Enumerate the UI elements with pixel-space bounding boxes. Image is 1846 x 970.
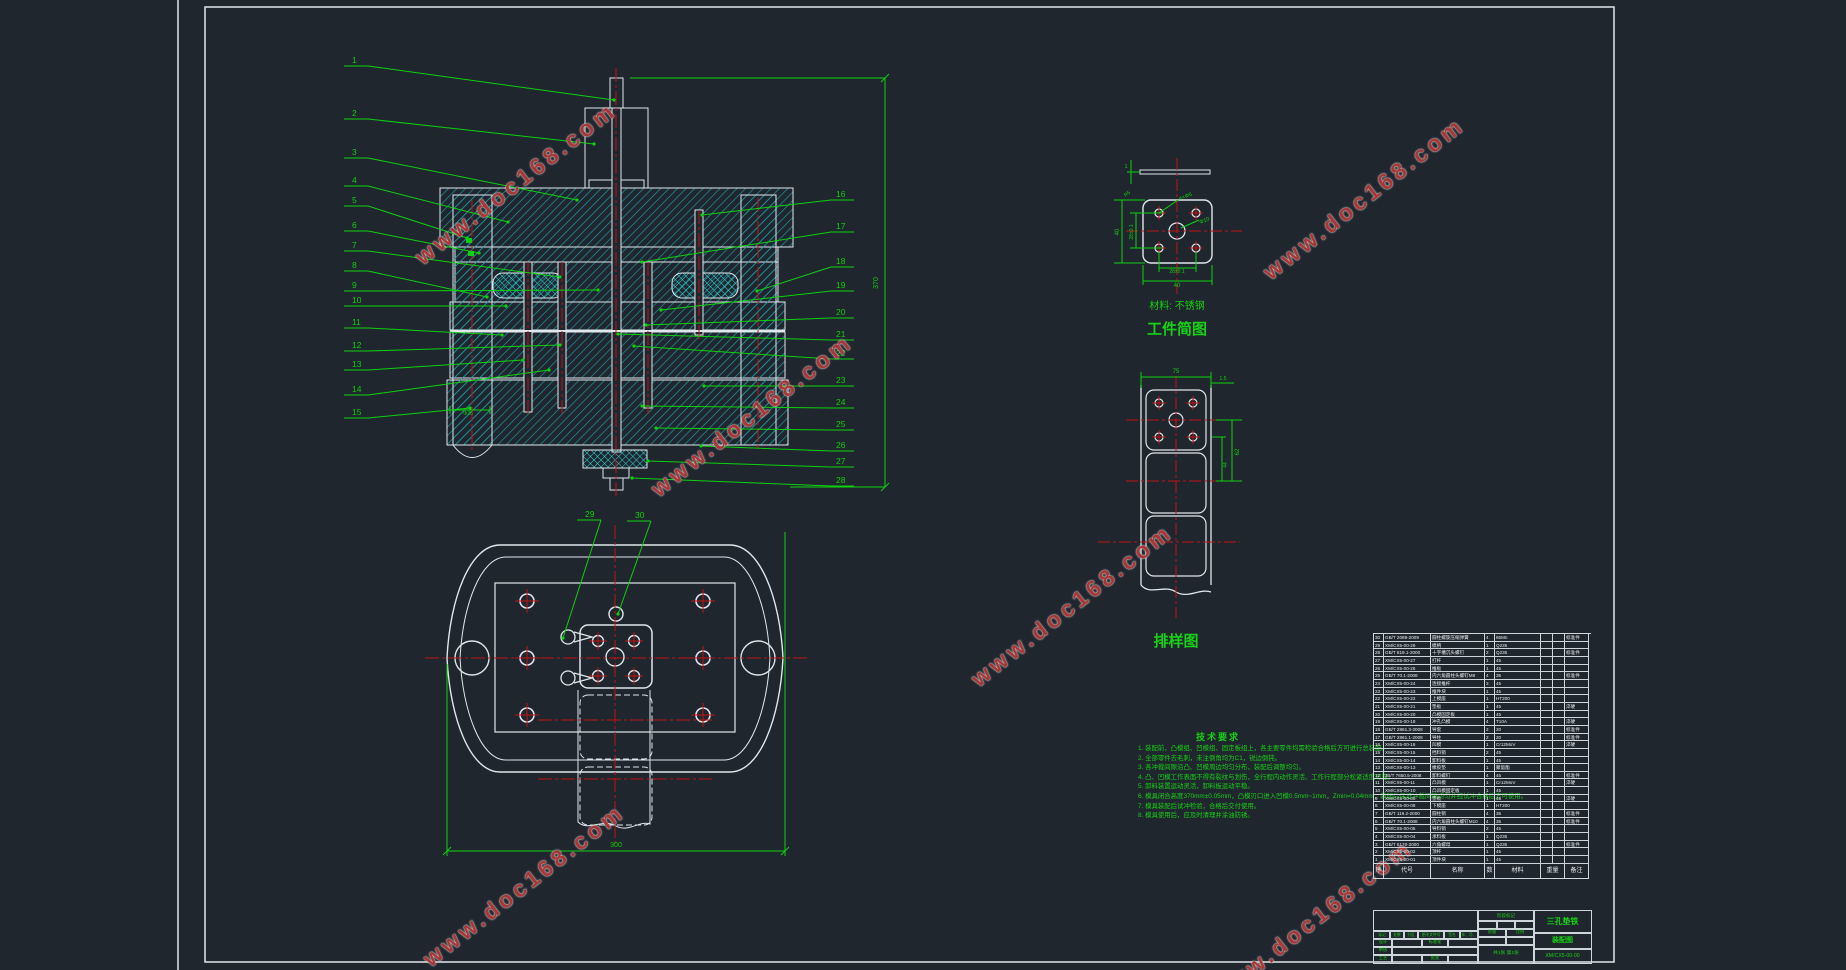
bom-cell: XM/CX5-00-02 [1384,848,1431,856]
bom-cell [1541,649,1553,657]
bom-cell: 14 [1374,757,1384,765]
bom-cell: 1 [1485,779,1495,787]
approve-sign-cell [1447,954,1479,964]
bom-cell: 导料销 [1431,825,1485,833]
bom-cell [1565,856,1589,864]
bom-row: 26XM/CX5-00-26推板145 [1374,665,1591,673]
bom-cell: 45 [1495,772,1541,780]
bom-cell: 35 [1495,810,1541,818]
leader-number: 17 [836,221,846,231]
bom-cell [1565,695,1589,703]
workpiece-view-title: 工件简图 [1147,320,1207,338]
bom-cell: 4 [1485,672,1495,680]
bom-header-weight: 重量 [1541,864,1565,879]
leader-number: 4 [352,175,357,185]
bom-cell [1553,825,1565,833]
bom-cell [1553,848,1565,856]
leader-line [701,446,831,451]
bom-cell: 2 [1485,726,1495,734]
bom-cell: 45 [1495,757,1541,765]
layout-view-title: 排样图 [1153,632,1198,650]
bom-cell [1553,688,1565,696]
bom-row: 13XM/CX5-00-13橡胶垫1聚氨酯 [1374,764,1591,772]
bom-cell: 3 [1485,680,1495,688]
bom-cell: GB/T 819.1-2000 [1384,649,1431,657]
bom-cell: 1 [1485,703,1495,711]
bom-cell: 冲孔凸模 [1431,718,1485,726]
leader-line [368,66,614,100]
bom-row: 16XM/CX5-00-16凹模1Cr12MoV淬硬 [1374,741,1591,749]
bom-cell: Q235 [1495,649,1541,657]
bom-header-code: 代号 [1384,864,1431,879]
leader-number: 6 [352,220,357,230]
bom-cell: 淬硬 [1565,795,1589,803]
bom-cell: 19 [1374,718,1384,726]
bom-cell: GB/T 2089-2009 [1384,634,1431,642]
bom-cell: 1 [1374,856,1384,864]
leader-number: 29 [585,509,595,519]
bom-cell [1565,680,1589,688]
layout-centerlines [1098,376,1240,618]
bom-cell: 26 [1374,665,1384,673]
bom-row: 23XM/CX5-00-23推件块145 [1374,688,1591,696]
leader-dot [632,344,635,347]
bom-cell [1553,734,1565,742]
leader-number: 26 [836,440,846,450]
bom-cell [1553,741,1565,749]
bom-row: 5XM/CX5-00-05导料销245 [1374,825,1591,833]
bom-cell: 橡胶垫 [1431,764,1485,772]
bom-header-no: 序号 [1374,864,1384,879]
workpiece-side-view [1140,170,1210,174]
bom-cell: HT200 [1495,802,1541,810]
bom-cell: 45 [1495,795,1541,803]
bom-cell: XM/CX5-00-14 [1384,757,1431,765]
bom-cell: 1 [1485,787,1495,795]
bom-cell [1541,848,1553,856]
rubber-block-right [672,273,738,298]
leader-dot [644,323,647,326]
bom-row: 4XM/CX5-00-04承料板1Q235 [1374,833,1591,841]
bom-row: 10XM/CX5-00-10凸凹模固定板145 [1374,787,1591,795]
bom-row: 9XM/CX5-00-09垫板145淬硬 [1374,795,1591,803]
bom-cell: 内六角圆柱头螺钉M8 [1431,672,1485,680]
dim-text: 370 [873,277,880,289]
bom-cell: XM/CX5-00-15 [1384,749,1431,757]
bom-cell: 凸模固定板 [1431,711,1485,719]
bom-cell: XM/CX5-00-04 [1384,833,1431,841]
bom-cell: 1 [1485,688,1495,696]
bom-cell: XM/CX5-00-19 [1384,718,1431,726]
dim-text: 300 [610,842,622,849]
bom-cell: JB/T 7650.5-2008 [1384,772,1431,780]
bom-cell: 1 [1485,657,1495,665]
bom-cell: 45 [1495,703,1541,711]
bom-cell: 标准件 [1565,841,1589,849]
bom-cell: XM/CX5-00-20 [1384,711,1431,719]
bom-cell [1541,841,1553,849]
bom-cell: 1 [1485,711,1495,719]
leader-dot [592,142,595,145]
bom-cell: 28 [1374,649,1384,657]
thickness-dim [1127,160,1140,184]
dim-text: Φ10 [1199,216,1211,226]
bom-cell: 7 [1374,810,1384,818]
workpiece-material-note: 材料: 不锈钢 [1149,299,1205,312]
bom-cell [1565,657,1589,665]
leader-dot [616,332,619,335]
bom-cell: Q235 [1495,642,1541,650]
bom-cell [1565,787,1589,795]
bom-cell: XM/CX5-00-24 [1384,680,1431,688]
bom-row: 28GB/T 819.1-2000十字槽沉头螺钉2Q235标准件 [1374,649,1591,657]
leader-dot [485,295,488,298]
bom-cell: 27 [1374,657,1384,665]
bom-cell: 35 [1495,672,1541,680]
leader-dot [699,444,702,447]
leader-dot [575,198,578,201]
bom-cell [1553,649,1565,657]
bom-cell: 20 [1495,726,1541,734]
bom-cell: 65Mn [1495,634,1541,642]
leader-line [632,478,831,486]
bom-cell: XM/CX5-00-01 [1384,856,1431,864]
bom-cell: Q235 [1495,833,1541,841]
bom-cell: 1 [1485,848,1495,856]
bom-cell: 1 [1485,757,1495,765]
bom-cell: 导柱 [1431,734,1485,742]
bom-row: 25GB/T 70.1-2008内六角圆柱头螺钉M8435标准件 [1374,672,1591,680]
bom-row: 8XM/CX5-00-08下模座1HT200 [1374,802,1591,810]
dim-text: 1 [1124,164,1127,170]
bom-row: 27XM/CX5-00-27打杆145 [1374,657,1591,665]
leader-number: 5 [352,195,357,205]
bom-cell: 推件块 [1431,688,1485,696]
leader-dot [630,476,633,479]
bom-cell [1553,749,1565,757]
leader-number: 14 [352,384,362,394]
bom-cell: 1 [1485,833,1495,841]
bom-cell: 1 [1485,841,1495,849]
bom-row: 7GB/T 119.2-2000圆柱销435标准件 [1374,810,1591,818]
bom-cell [1565,688,1589,696]
bom-cell: 4 [1374,833,1384,841]
bom-cell: 45 [1495,657,1541,665]
leader-number: 19 [836,280,846,290]
bom-cell: XM/CX5-00-22 [1384,695,1431,703]
leader-number: 9 [352,280,357,290]
bom-cell [1565,642,1589,650]
bom-cell: 2 [1485,734,1495,742]
bom-cell: 30 [1374,634,1384,642]
plan-view [425,525,808,856]
bom-cell [1565,757,1589,765]
bom-cell [1541,757,1553,765]
bom-cell: 六角螺母 [1431,841,1485,849]
dim-text: R5 [1123,190,1132,199]
product-name: 三孔垫铁 [1533,910,1592,934]
bom-cell: 1 [1485,695,1495,703]
leader-dot [702,384,705,387]
bom-cell [1541,642,1553,650]
bom-cell: 淬硬 [1565,779,1589,787]
bom-cell: 8 [1374,802,1384,810]
leader-dot [558,275,561,278]
section-view [440,68,889,497]
bom-cell: 圆柱螺旋压缩弹簧 [1431,634,1485,642]
bom-cell [1553,634,1565,642]
bom-row: 1XM/CX5-00-01顶件块145 [1374,856,1591,864]
dim-text: 62 [1235,448,1241,455]
leader-number: 2 [352,108,357,118]
leader-dot [659,308,662,311]
leader-number: 23 [836,375,846,385]
bom-cell: 标准件 [1565,734,1589,742]
bom-cell: 标准件 [1565,672,1589,680]
bom-cell: 标准件 [1565,818,1589,826]
bom-cell: 45 [1495,711,1541,719]
bom-cell [1541,695,1553,703]
bom-cell: 标准件 [1565,772,1589,780]
bom-header-remark: 备注 [1565,864,1589,879]
leader-number: 13 [352,359,362,369]
bom-cell: 16 [1374,741,1384,749]
bom-cell: 45 [1495,787,1541,795]
bom-cell [1553,665,1565,673]
leader-dot [654,426,657,429]
bom-cell: 12 [1374,772,1384,780]
leader-dot [506,220,509,223]
bom-cell: GB/T 70.1-2008 [1384,672,1431,680]
bom-cell: GB/T 2861.3-2008 [1384,726,1431,734]
bom-header-row: 序号 代号 名称 数量 材料 重量 备注 [1374,864,1591,879]
bom-cell [1541,741,1553,749]
leader-number: 15 [352,407,362,417]
bom-cell: 顶件块 [1431,856,1485,864]
bom-cell: 打杆 [1431,657,1485,665]
leader-dot [477,251,480,254]
bom-cell: GB/T 6170-2000 [1384,841,1431,849]
cad-drawing-canvas: 1234567891011121314151617181920212223242… [0,0,1846,970]
piece-holes [593,607,640,682]
bom-cell: 垫板 [1431,703,1485,711]
leader-dot [640,260,643,263]
bom-cell [1541,688,1553,696]
bom-cell [1565,802,1589,810]
bom-cell: 推板 [1431,665,1485,673]
bom-cell: GB/T 70.1-2008 [1384,818,1431,826]
bom-cell [1541,795,1553,803]
dim-text: 44 [1223,462,1229,468]
bom-cell: 22 [1374,695,1384,703]
leader-number: 27 [836,456,846,466]
bom-cell: 2 [1485,649,1495,657]
bom-row: 3GB/T 6170-2000六角螺母1Q235标准件 [1374,841,1591,849]
bom-row: 30GB/T 2089-2009圆柱螺旋压缩弹簧465Mn标准件 [1374,634,1591,642]
bom-cell [1541,634,1553,642]
bom-row: 22XM/CX5-00-22上模座1HT200 [1374,695,1591,703]
bom-cell: 6 [1374,818,1384,826]
bom-cell: 下模座 [1431,802,1485,810]
bom-row: 2XM/CX5-00-02顶杆145 [1374,848,1591,856]
bom-cell: 模柄 [1431,642,1485,650]
bom-cell [1553,726,1565,734]
bom-cell [1553,779,1565,787]
bom-cell [1553,772,1565,780]
leader-number: 30 [635,510,645,520]
bom-cell: 顶杆 [1431,848,1485,856]
bom-cell: 45 [1495,856,1541,864]
leader-number: 12 [352,340,362,350]
leader-number: 1 [352,55,357,65]
bom-cell [1541,749,1553,757]
bom-cell: 45 [1495,749,1541,757]
bom-cell: 11 [1374,779,1384,787]
bom-cell [1553,672,1565,680]
bom-cell [1541,856,1553,864]
bom-cell: 18 [1374,726,1384,734]
leader-dot [596,288,599,291]
bom-cell: 45 [1495,825,1541,833]
bom-row: 14XM/CX5-00-14卸料板145 [1374,757,1591,765]
bom-cell [1541,726,1553,734]
bom-cell [1565,665,1589,673]
bom-cell: XM/CX5-00-16 [1384,741,1431,749]
bom-cell: XM/CX5-00-13 [1384,764,1431,772]
bom-cell [1541,802,1553,810]
leader-line [368,119,594,144]
bom-cell: 挡料销 [1431,749,1485,757]
bom-cell: 2 [1485,749,1495,757]
bom-cell [1541,772,1553,780]
strip-layout-view [1098,372,1242,618]
bom-cell: Q235 [1495,841,1541,849]
leader-dot [547,368,550,371]
bom-cell: XM/CX5-00-09 [1384,795,1431,803]
leader-line [618,521,651,614]
bom-cell: 9 [1374,795,1384,803]
bom-cell: 4 [1485,818,1495,826]
bom-cell: 承料板 [1431,833,1485,841]
bom-cell: 1 [1485,764,1495,772]
bom-header-mat: 材料 [1495,864,1541,879]
bom-cell [1541,825,1553,833]
leader-dot [468,406,471,409]
dim-text: Φ25 [463,411,473,417]
bom-cell: 连接推杆 [1431,680,1485,688]
bom-cell: 1 [1485,741,1495,749]
leader-number: 20 [836,307,846,317]
bom-cell [1565,848,1589,856]
leader-dot [640,404,643,407]
bom-cell: 凸凹模固定板 [1431,787,1485,795]
bom-cell: Cr12MoV [1495,741,1541,749]
bom-cell [1553,711,1565,719]
leader-number: 3 [352,147,357,157]
bom-cell: 十字槽沉头螺钉 [1431,649,1485,657]
leader-dot [558,343,561,346]
bom-row: 15XM/CX5-00-15挡料销245 [1374,749,1591,757]
leader-number: 16 [836,189,846,199]
bom-cell: 卸料螺钉 [1431,772,1485,780]
bom-row: 24XM/CX5-00-24连接推杆345 [1374,680,1591,688]
process-label: 工艺 [1373,954,1393,964]
bom-cell: XM/CX5-00-21 [1384,703,1431,711]
bom-cell: 凸凹模 [1431,779,1485,787]
bom-cell: 标准件 [1565,634,1589,642]
leader-dot [521,358,524,361]
bom-cell: 4 [1485,718,1495,726]
leader-dot [700,213,703,216]
bom-header-qty: 数量 [1485,864,1495,879]
bom-cell: T10A [1495,718,1541,726]
bom-cell: XM/CX5-00-29 [1384,642,1431,650]
bom-cell [1553,787,1565,795]
bom-row: 29XM/CX5-00-29模柄1Q235 [1374,642,1591,650]
bom-cell: 20 [1374,711,1384,719]
bom-cell [1553,802,1565,810]
bom-row: 17GB/T 2861.1-2008导柱220标准件 [1374,734,1591,742]
leader-number: 22 [836,348,846,358]
bom-cell [1553,703,1565,711]
bom-cell: Cr12MoV [1495,779,1541,787]
leader-dot [646,459,649,462]
dim-text: 4×Φ5 [1178,192,1193,203]
dim-text: 28±0.1 [1129,224,1135,239]
bom-cell: 卸料板 [1431,757,1485,765]
bom-cell: 1 [1485,795,1495,803]
bom-cell [1565,833,1589,841]
bom-cell: 圆柱销 [1431,810,1485,818]
bom-cell: 4 [1485,634,1495,642]
bom-cell: XM/CX5-00-08 [1384,802,1431,810]
dim-text: 40 [1115,228,1121,235]
bom-row: 6GB/T 70.1-2008内六角圆柱头螺钉M10435标准件 [1374,818,1591,826]
bom-cell [1553,856,1565,864]
tech-req-title: 技术要求 [1196,730,1240,743]
bom-row: 12JB/T 7650.5-2008卸料螺钉445标准件 [1374,772,1591,780]
bom-cell: 45 [1495,665,1541,673]
bom-cell: 5 [1374,825,1384,833]
bom-cell [1553,764,1565,772]
bom-cell [1541,779,1553,787]
leader-dot [504,304,507,307]
bom-cell [1541,657,1553,665]
bom-cell: 2 [1374,848,1384,856]
bom-cell [1553,680,1565,688]
bom-cell: 淬硬 [1565,703,1589,711]
bom-cell [1553,818,1565,826]
leader-number: 28 [836,475,846,485]
leader-line [648,461,831,467]
leader-number: 7 [352,240,357,250]
bom-cell: XM/CX5-00-10 [1384,787,1431,795]
bom-cell: 导套 [1431,726,1485,734]
bom-cell [1553,810,1565,818]
bom-cell: 1 [1485,642,1495,650]
bom-table: 30GB/T 2089-2009圆柱螺旋压缩弹簧465Mn标准件29XM/CX5… [1373,633,1591,879]
bom-cell [1541,818,1553,826]
bom-cell: 13 [1374,764,1384,772]
bom-cell [1553,718,1565,726]
bom-cell [1565,764,1589,772]
bom-cell: 29 [1374,642,1384,650]
bom-cell [1553,833,1565,841]
leader-dot [755,289,758,292]
bom-row: 18GB/T 2861.3-2008导套220标准件 [1374,726,1591,734]
leader-number: 25 [836,419,846,429]
bom-cell: 23 [1374,688,1384,696]
